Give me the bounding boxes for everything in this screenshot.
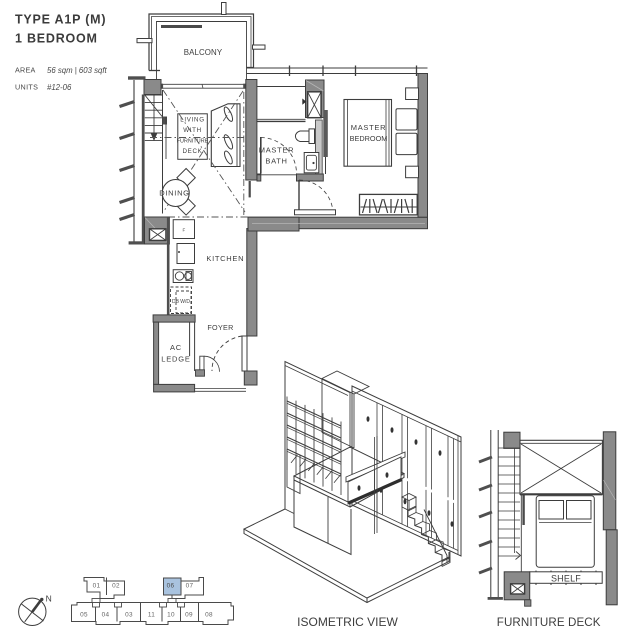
svg-text:MASTER: MASTER [259, 146, 294, 155]
svg-text:06: 06 [167, 583, 175, 590]
svg-text:BEDROOM: BEDROOM [350, 134, 388, 143]
svg-text:AREA: AREA [15, 66, 36, 75]
svg-text:08: 08 [205, 612, 213, 619]
svg-text:DB W/D: DB W/D [172, 299, 190, 305]
svg-text:DECK: DECK [183, 148, 203, 155]
svg-text:F: F [183, 228, 186, 233]
svg-text:KITCHEN: KITCHEN [206, 254, 244, 263]
svg-text:10: 10 [167, 612, 175, 619]
svg-text:TYPE A1P (M): TYPE A1P (M) [15, 13, 106, 27]
svg-text:56 sqm | 603 sqft: 56 sqm | 603 sqft [47, 66, 108, 75]
svg-text:01: 01 [93, 583, 101, 590]
svg-text:BATH: BATH [265, 157, 287, 166]
svg-text:ISOMETRIC VIEW: ISOMETRIC VIEW [297, 615, 398, 629]
svg-text:N: N [46, 594, 52, 604]
svg-text:05: 05 [80, 612, 88, 619]
svg-text:#12-06: #12-06 [47, 83, 72, 92]
svg-text:09: 09 [185, 612, 193, 619]
svg-text:BALCONY: BALCONY [184, 48, 223, 57]
svg-text:AC: AC [170, 343, 182, 352]
svg-text:WITH: WITH [183, 127, 202, 134]
svg-text:FURNITURE DECK: FURNITURE DECK [497, 616, 601, 629]
svg-text:07: 07 [186, 583, 194, 590]
svg-text:SHELF: SHELF [551, 574, 581, 584]
svg-text:MASTER: MASTER [351, 123, 386, 132]
svg-text:FURNITURE: FURNITURE [177, 139, 209, 145]
svg-text:DINING: DINING [159, 189, 189, 198]
svg-text:FOYER: FOYER [207, 323, 233, 332]
svg-text:LEDGE: LEDGE [161, 355, 190, 364]
svg-text:04: 04 [102, 612, 110, 619]
svg-text:02: 02 [112, 583, 120, 590]
svg-text:03: 03 [125, 612, 133, 619]
svg-text:LIVING: LIVING [180, 116, 205, 123]
svg-text:1 BEDROOM: 1 BEDROOM [15, 32, 98, 46]
svg-text:UNITS: UNITS [15, 83, 38, 92]
svg-text:11: 11 [148, 612, 155, 619]
